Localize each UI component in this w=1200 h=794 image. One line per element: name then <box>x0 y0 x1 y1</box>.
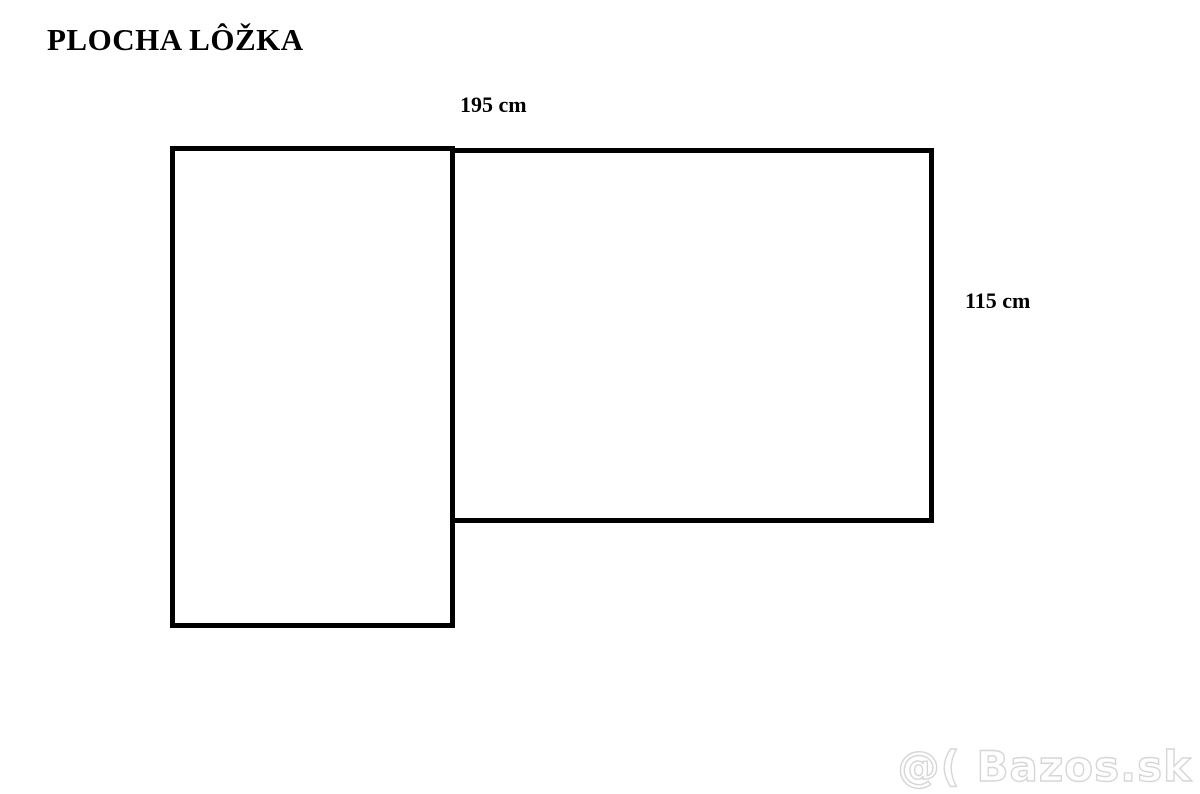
height-dimension-label: 115 cm <box>965 288 1030 314</box>
bazos-watermark: @( Bazos.sk <box>898 742 1192 791</box>
width-dimension-label: 195 cm <box>460 92 527 118</box>
bed-left-rectangle <box>170 146 455 628</box>
page-title: PLOCHA LÔŽKA <box>47 22 304 58</box>
bed-right-rectangle <box>450 148 934 523</box>
page: PLOCHA LÔŽKA 195 cm 115 cm @( Bazos.sk <box>0 0 1200 794</box>
